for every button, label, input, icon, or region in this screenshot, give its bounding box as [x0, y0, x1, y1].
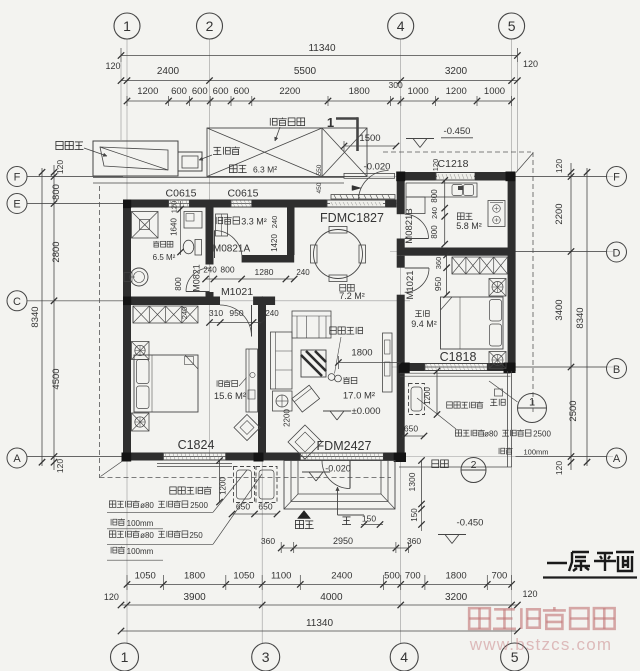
svg-text:4000: 4000	[320, 592, 343, 603]
svg-text:3.3 M²: 3.3 M²	[241, 217, 267, 227]
svg-text:M0821: M0821	[192, 264, 202, 292]
svg-text:120: 120	[55, 160, 65, 174]
svg-text:120: 120	[554, 461, 564, 475]
svg-text:4500: 4500	[51, 368, 62, 389]
svg-text:120: 120	[554, 159, 564, 173]
svg-text:600: 600	[171, 86, 187, 97]
svg-text:www.bstzcs.com: www.bstzcs.com	[469, 635, 612, 654]
svg-text:B: B	[613, 364, 620, 376]
svg-text:240: 240	[180, 307, 189, 320]
svg-text:1050: 1050	[135, 571, 156, 582]
svg-text:8340: 8340	[575, 307, 586, 328]
svg-text:3200: 3200	[445, 66, 468, 77]
svg-text:800: 800	[174, 277, 183, 291]
svg-text:2200: 2200	[554, 203, 565, 224]
svg-text:-0.450: -0.450	[457, 518, 484, 529]
svg-text:D: D	[613, 248, 621, 260]
svg-text:500: 500	[384, 571, 400, 582]
svg-text:240: 240	[265, 309, 279, 318]
svg-text:100mm: 100mm	[127, 519, 154, 528]
svg-text:1: 1	[121, 649, 129, 665]
svg-text:F: F	[14, 172, 21, 184]
svg-text:17.0 M²: 17.0 M²	[343, 391, 375, 402]
svg-text:150: 150	[362, 514, 376, 524]
svg-text:100mm: 100mm	[127, 547, 154, 556]
svg-text:1300: 1300	[407, 472, 417, 491]
svg-text:950: 950	[229, 308, 243, 318]
svg-text:9.4 M²: 9.4 M²	[411, 319, 437, 329]
svg-text:360: 360	[407, 536, 421, 546]
svg-text:240: 240	[432, 207, 439, 219]
svg-text:240: 240	[203, 266, 217, 275]
svg-text:1280: 1280	[255, 267, 274, 277]
svg-text:11340: 11340	[306, 618, 334, 629]
svg-text:150: 150	[410, 508, 419, 522]
svg-text:1050: 1050	[233, 571, 254, 582]
svg-text:1: 1	[123, 18, 131, 34]
svg-text:2950: 2950	[333, 536, 353, 546]
svg-text:550: 550	[316, 164, 323, 175]
svg-text:120: 120	[104, 592, 119, 602]
svg-text:1200: 1200	[423, 387, 432, 405]
svg-text:1: 1	[529, 397, 535, 409]
svg-text:6.5 M²: 6.5 M²	[153, 253, 176, 262]
svg-text:3: 3	[262, 649, 270, 665]
svg-text:300: 300	[389, 80, 403, 90]
svg-text:6.3 M²: 6.3 M²	[253, 165, 277, 175]
svg-text:FDM2427: FDM2427	[317, 439, 372, 453]
svg-text:±0.000: ±0.000	[352, 406, 381, 417]
svg-text:1800: 1800	[184, 571, 205, 582]
svg-text:600: 600	[233, 86, 249, 97]
svg-text:950: 950	[433, 277, 443, 291]
svg-text:1800: 1800	[351, 348, 372, 359]
svg-text:4: 4	[400, 649, 408, 665]
svg-text:650: 650	[258, 502, 272, 512]
svg-text:2: 2	[206, 18, 214, 34]
svg-text:1200: 1200	[219, 477, 228, 495]
svg-text:C: C	[13, 296, 21, 308]
svg-text:120: 120	[522, 589, 537, 599]
svg-text:2800: 2800	[51, 241, 62, 262]
svg-text:5500: 5500	[294, 66, 317, 77]
svg-text:360: 360	[434, 257, 443, 270]
svg-text:2500: 2500	[568, 400, 579, 421]
svg-text:2500: 2500	[190, 501, 208, 510]
svg-text:1: 1	[327, 115, 334, 130]
svg-text:F: F	[613, 172, 620, 184]
svg-text:1100: 1100	[271, 571, 291, 582]
svg-text:M0821A: M0821A	[213, 244, 251, 255]
svg-text:120: 120	[523, 59, 538, 69]
svg-text:650: 650	[236, 502, 250, 512]
svg-text:5: 5	[508, 18, 516, 34]
svg-text:4: 4	[397, 18, 405, 34]
svg-text:310: 310	[209, 308, 223, 318]
svg-text:C1818: C1818	[440, 350, 477, 364]
svg-text:2: 2	[471, 459, 477, 471]
svg-text:ø80: ø80	[484, 430, 498, 439]
svg-text:700: 700	[405, 571, 421, 582]
svg-text:360: 360	[261, 536, 275, 546]
svg-text:3900: 3900	[183, 592, 206, 603]
svg-text:1000: 1000	[408, 86, 429, 97]
svg-text:1800: 1800	[349, 86, 370, 97]
svg-text:2400: 2400	[331, 571, 352, 582]
svg-text:2500: 2500	[533, 430, 551, 439]
svg-text:1200: 1200	[137, 86, 158, 97]
svg-text:800: 800	[430, 225, 439, 239]
svg-text:M1021: M1021	[221, 286, 253, 298]
svg-text:C0615: C0615	[166, 188, 197, 200]
svg-text:120: 120	[105, 61, 120, 71]
svg-text:250: 250	[189, 531, 203, 540]
svg-text:600: 600	[213, 86, 229, 97]
svg-text:700: 700	[491, 571, 507, 582]
svg-text:600: 600	[192, 86, 208, 97]
svg-text:ø80: ø80	[140, 501, 154, 510]
svg-text:8340: 8340	[30, 306, 41, 327]
svg-text:C1824: C1824	[178, 438, 215, 452]
svg-text:650: 650	[404, 424, 418, 434]
svg-text:C1218: C1218	[438, 158, 469, 170]
svg-text:1420: 1420	[270, 234, 279, 252]
svg-text:7.2 M²: 7.2 M²	[339, 291, 365, 301]
svg-text:1800: 1800	[446, 571, 467, 582]
svg-text:FDMC1827: FDMC1827	[320, 211, 384, 225]
svg-text:11340: 11340	[308, 43, 336, 54]
svg-text:240: 240	[296, 268, 310, 277]
svg-text:1500: 1500	[359, 133, 380, 144]
svg-text:3400: 3400	[554, 299, 565, 320]
svg-text:-0.450: -0.450	[444, 126, 471, 137]
svg-text:3200: 3200	[445, 592, 468, 603]
svg-text:100mm: 100mm	[523, 448, 548, 457]
svg-text:120: 120	[170, 201, 179, 214]
svg-text:120: 120	[431, 159, 440, 172]
svg-text:1200: 1200	[446, 86, 467, 97]
svg-text:1000: 1000	[484, 86, 505, 97]
svg-text:240: 240	[270, 216, 279, 229]
svg-text:120: 120	[55, 459, 65, 473]
svg-text:800: 800	[430, 189, 439, 203]
svg-text:800: 800	[220, 265, 234, 275]
svg-text:450: 450	[316, 182, 323, 193]
svg-text:C0615: C0615	[228, 188, 259, 200]
svg-text:5.8 M²: 5.8 M²	[456, 221, 482, 231]
svg-text:M1021: M1021	[405, 270, 416, 299]
svg-text:ø80: ø80	[140, 531, 154, 540]
svg-text:E: E	[13, 199, 20, 211]
svg-text:A: A	[613, 453, 621, 465]
svg-text:A: A	[13, 453, 21, 465]
svg-text:2200: 2200	[279, 86, 300, 97]
svg-text:15.6 M²: 15.6 M²	[214, 391, 246, 402]
svg-text:800: 800	[51, 184, 62, 200]
svg-text:1640: 1640	[170, 218, 179, 236]
svg-text:2400: 2400	[157, 66, 180, 77]
